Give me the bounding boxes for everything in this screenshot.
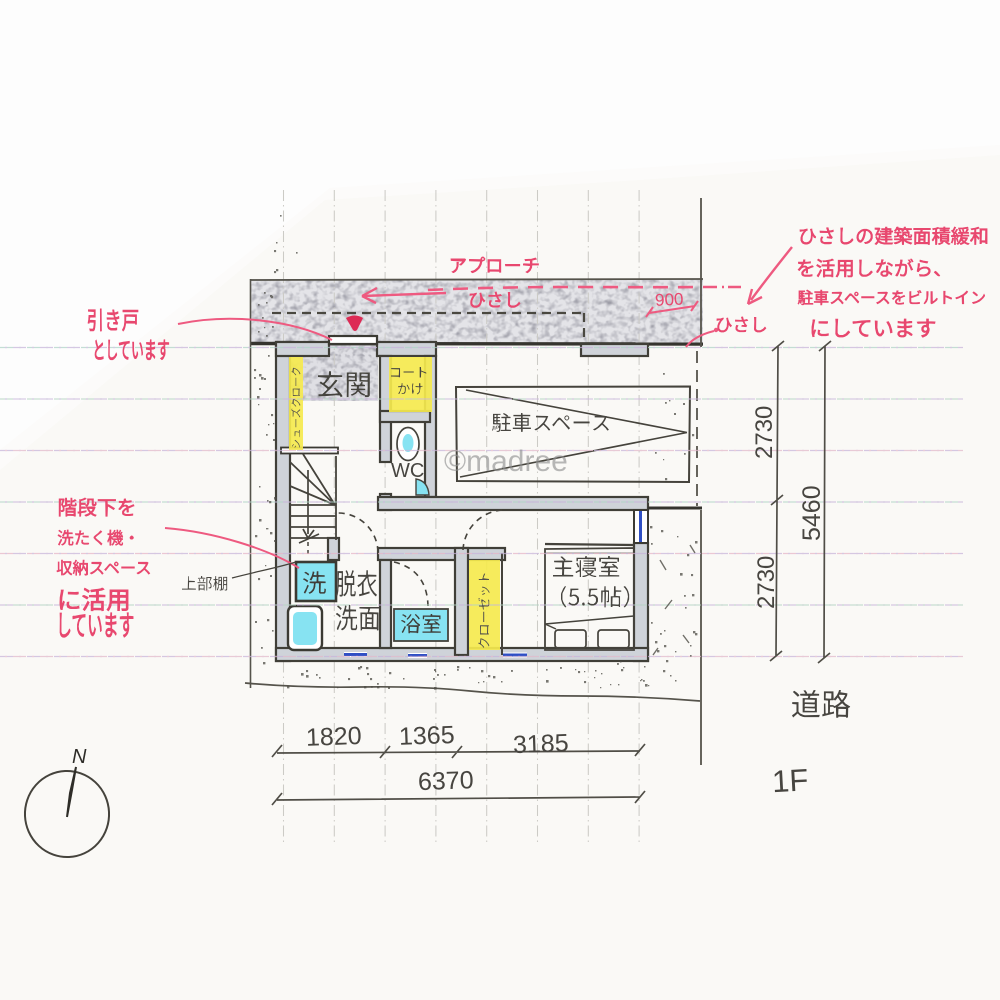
svg-text:1365: 1365 <box>398 721 455 751</box>
svg-text:1F: 1F <box>771 762 809 799</box>
svg-text:3185: 3185 <box>512 729 569 759</box>
svg-text:6370: 6370 <box>417 766 474 796</box>
svg-text:2730: 2730 <box>751 406 778 459</box>
svg-text:5460: 5460 <box>798 485 826 541</box>
svg-text:900: 900 <box>655 289 684 309</box>
svg-text:WC: WC <box>391 460 424 482</box>
svg-text:1820: 1820 <box>305 722 362 752</box>
svg-text:N: N <box>72 746 87 768</box>
svg-text:©madree: ©madree <box>444 445 568 478</box>
svg-text:2730: 2730 <box>753 556 780 609</box>
